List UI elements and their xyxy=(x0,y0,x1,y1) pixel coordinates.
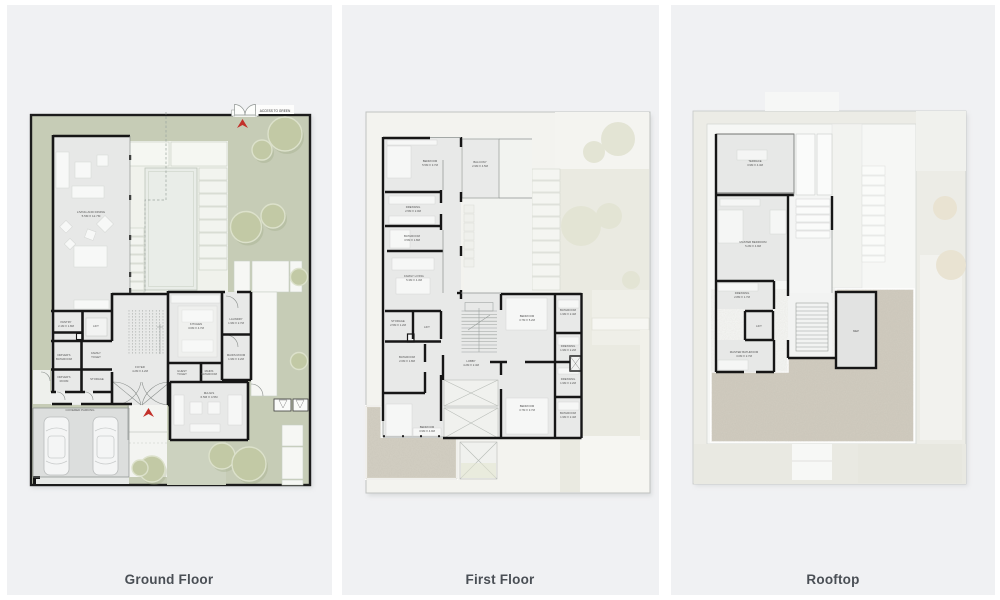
svg-text:3.6M X 4.7M: 3.6M X 4.7M xyxy=(188,326,205,330)
svg-text:3.9M X 4.4M: 3.9M X 4.4M xyxy=(747,163,764,167)
svg-text:Rooftop: Rooftop xyxy=(806,572,859,587)
svg-text:1.9M X 2.4M: 1.9M X 2.4M xyxy=(560,415,577,419)
svg-text:1.9M X 2.2M: 1.9M X 2.2M xyxy=(560,348,577,352)
svg-text:3.0M X 2.7M: 3.0M X 2.7M xyxy=(736,354,753,358)
svg-text:BATHROOM: BATHROOM xyxy=(56,357,73,361)
svg-text:1.9M X 2.2M: 1.9M X 2.2M xyxy=(560,381,577,385)
svg-text:TOILET: TOILET xyxy=(91,355,101,359)
svg-text:BATHROOM: BATHROOM xyxy=(201,372,218,376)
svg-text:5.2M X 4.9M: 5.2M X 4.9M xyxy=(745,244,762,248)
svg-text:2.9M X 4.5M: 2.9M X 4.5M xyxy=(472,164,489,168)
svg-text:STORAGE: STORAGE xyxy=(90,377,104,381)
svg-text:3.7M X 5.2M: 3.7M X 5.2M xyxy=(519,318,536,322)
svg-text:2.5M X 2.0M: 2.5M X 2.0M xyxy=(405,209,422,213)
svg-text:First Floor: First Floor xyxy=(466,572,535,587)
svg-text:Ground Floor: Ground Floor xyxy=(125,572,214,587)
svg-text:3.7M X 3.7M: 3.7M X 3.7M xyxy=(519,408,536,412)
svg-text:5.5M X 12.7M: 5.5M X 12.7M xyxy=(82,214,101,218)
svg-text:2.6M X 1.8M: 2.6M X 1.8M xyxy=(399,359,416,363)
svg-text:COVERED PARKING: COVERED PARKING xyxy=(66,408,96,412)
svg-text:3.9M X 4.9M: 3.9M X 4.9M xyxy=(419,429,436,433)
svg-text:3.5M X 1.8M: 3.5M X 1.8M xyxy=(404,238,421,242)
svg-text:6.5M X 4.5M: 6.5M X 4.5M xyxy=(200,395,218,399)
svg-text:4.2M X 2.4M: 4.2M X 2.4M xyxy=(463,363,480,367)
svg-text:1.9M X 2.4M: 1.9M X 2.4M xyxy=(560,312,577,316)
svg-text:ACCESS TO GREEN: ACCESS TO GREEN xyxy=(260,109,291,113)
svg-text:2.1M X 1.8M: 2.1M X 1.8M xyxy=(58,324,75,328)
svg-text:2.5M X 1.2M: 2.5M X 1.2M xyxy=(390,323,407,327)
svg-text:LIFT: LIFT xyxy=(424,325,430,329)
svg-text:LIFT: LIFT xyxy=(93,324,99,328)
svg-text:ROOM: ROOM xyxy=(60,379,69,383)
svg-text:2.8M X 1.7M: 2.8M X 1.7M xyxy=(734,295,751,299)
svg-text:MEP: MEP xyxy=(853,329,859,333)
svg-text:1.9M X 3.2M: 1.9M X 3.2M xyxy=(228,357,245,361)
svg-text:5.3M X 4.3M: 5.3M X 4.3M xyxy=(406,278,423,282)
svg-text:1.9M X 2.7M: 1.9M X 2.7M xyxy=(228,321,245,325)
svg-text:4.2M X 4.2M: 4.2M X 4.2M xyxy=(132,369,149,373)
svg-text:TOILET: TOILET xyxy=(177,372,187,376)
svg-text:5.5M X 3.7M: 5.5M X 3.7M xyxy=(422,163,439,167)
svg-text:LIFT: LIFT xyxy=(756,324,762,328)
